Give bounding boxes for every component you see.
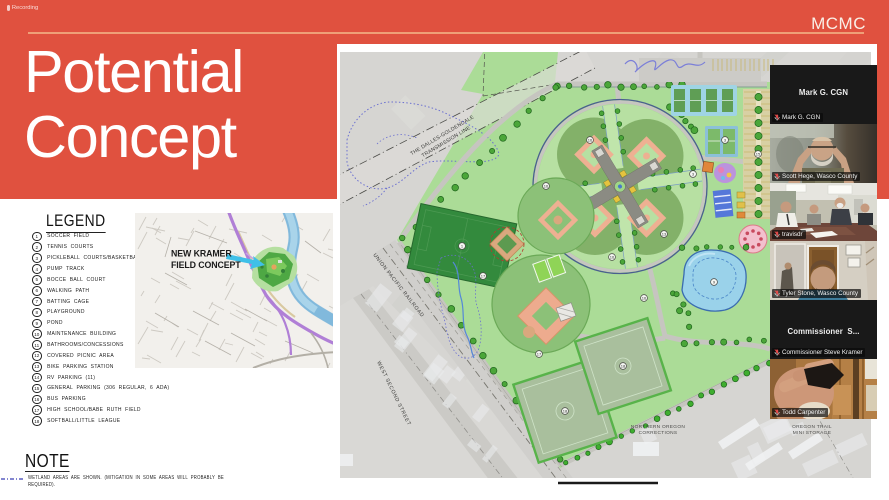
svg-text:15: 15 <box>756 152 761 157</box>
svg-text:OREGON TRAIL: OREGON TRAIL <box>792 424 832 430</box>
svg-text:18: 18 <box>621 364 626 369</box>
svg-text:NORTHERN OREGON: NORTHERN OREGON <box>631 424 685 430</box>
svg-text:13: 13 <box>662 232 667 237</box>
svg-text:17: 17 <box>481 274 486 279</box>
svg-text:CORRECTIONS: CORRECTIONS <box>639 430 678 436</box>
svg-text:MINI STORAGE: MINI STORAGE <box>793 430 831 436</box>
svg-text:16: 16 <box>610 255 615 260</box>
svg-text:16: 16 <box>588 138 593 143</box>
svg-text:17: 17 <box>537 352 542 357</box>
svg-text:18: 18 <box>563 409 568 414</box>
svg-text:NEW KRAMER: NEW KRAMER <box>171 249 232 259</box>
svg-text:16: 16 <box>544 184 549 189</box>
svg-text:16: 16 <box>642 296 647 301</box>
svg-text:FIELD CONCEPT: FIELD CONCEPT <box>171 260 241 270</box>
